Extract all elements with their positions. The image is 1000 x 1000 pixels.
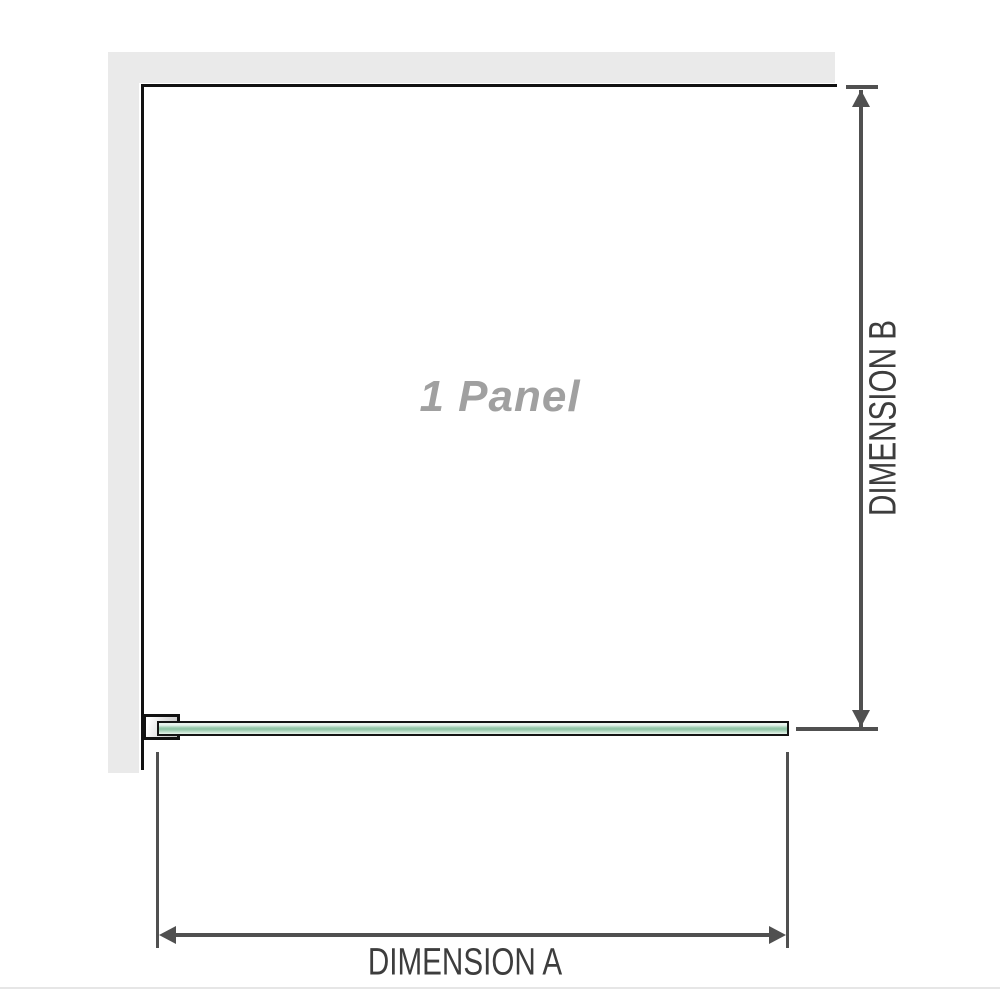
dimension-a-left-extension-line [156, 752, 159, 948]
glass-panel [157, 721, 789, 736]
arrow-down-icon [852, 710, 870, 727]
dimension-diagram: 1 Panel DIMENSION B DIMENSION A [0, 0, 1000, 1000]
dimension-b-top-tick [846, 85, 878, 89]
wall-top [108, 52, 835, 83]
image-bottom-border [0, 987, 1000, 989]
panel-count-label: 1 Panel [419, 372, 580, 422]
dimension-b-label: DIMENSION B [863, 292, 906, 543]
wall-left [108, 52, 139, 773]
arrow-right-icon [769, 926, 786, 944]
dimension-a-label: DIMENSION A [340, 942, 589, 985]
dimension-a-line [163, 933, 781, 937]
wall-top-edge-line [141, 84, 837, 87]
dimension-b-label-text: DIMENSION B [863, 320, 906, 516]
dimension-a-label-text: DIMENSION A [368, 942, 562, 985]
wall-left-edge-line [141, 84, 144, 770]
dimension-b-bottom-tick [796, 727, 878, 731]
dimension-a-right-extension-line [786, 752, 789, 948]
arrow-left-icon [159, 926, 176, 944]
arrow-up-icon [852, 90, 870, 107]
